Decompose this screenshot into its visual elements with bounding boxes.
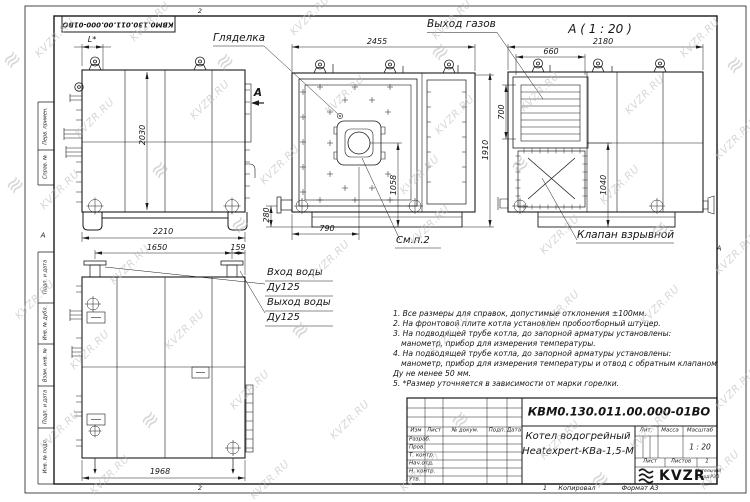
water-outlet-label: Выход воды xyxy=(267,298,331,308)
margin-cell-inv-podl: Инв. № подл. xyxy=(44,439,49,474)
hdr-doc: № докум. xyxy=(451,428,478,434)
format-label: Формат А3 xyxy=(621,485,658,492)
sheets-value: 1 xyxy=(705,459,709,465)
front-view-drawing xyxy=(64,44,264,242)
explosion-valve-label: Клапан взрывной xyxy=(577,230,674,241)
dim-790: 790 xyxy=(319,225,334,233)
sheet-label: Лист xyxy=(643,459,657,465)
water-inlet-label: Вход воды xyxy=(267,268,323,278)
lifting-lugs xyxy=(532,59,666,72)
dim-280: 280 xyxy=(263,207,271,222)
row-n-kontr: Н. контр. xyxy=(409,469,435,475)
note-line: 5. *Размер уточняется в зависимости от м… xyxy=(393,380,619,388)
dim-700: 700 xyxy=(498,104,506,119)
dim-2455: 2455 xyxy=(367,38,387,46)
lifting-lugs xyxy=(314,60,455,73)
margin-cell-podp-data-2: Подп. и дата xyxy=(44,390,49,424)
margin-cell-perv-primen: Перв. примен. xyxy=(44,107,49,145)
logo-subtitle-1: Котельный xyxy=(696,470,721,474)
product-name-line2: Heatexpert-КВа-1,5-М xyxy=(522,447,634,457)
copied-label: Копировал xyxy=(558,485,595,492)
dim-1968: 1968 xyxy=(150,468,170,476)
hdr-podp: Подп. xyxy=(489,428,506,434)
hand-holes xyxy=(87,312,209,425)
product-name-line1: Котел водогрейный xyxy=(526,432,631,442)
note-line: манометр, прибор для измерения температу… xyxy=(401,340,596,348)
kvzr-logo-icon xyxy=(639,469,653,483)
note-line: манометр, прибор для измерения температу… xyxy=(401,360,717,368)
top-stamp-doc-number: КВМ0.130.011.00.000-01ВО xyxy=(62,21,173,28)
lit-label: Лит. xyxy=(640,428,653,434)
dim-1058: 1058 xyxy=(390,175,398,195)
row-t-kontr: Т. контр. xyxy=(409,453,435,459)
scale-label: Масштаб xyxy=(687,428,713,434)
row-prov: Пров. xyxy=(409,445,425,451)
hdr-izm: Изм xyxy=(410,428,421,434)
dim-2180: 2180 xyxy=(593,38,613,46)
dim-2210: 2210 xyxy=(153,228,173,236)
lifting-lugs xyxy=(75,57,206,91)
dim-l-star: L* xyxy=(88,36,96,44)
dim-2030: 2030 xyxy=(139,125,147,145)
note-line: 1. Все размеры для справок, допустимые о… xyxy=(393,310,647,318)
sheets-label: Листов xyxy=(671,459,692,465)
note-line: Ду не менее 50 мм. xyxy=(393,370,471,378)
dim-1650: 1650 xyxy=(147,244,167,252)
margin-cell-podp-data-1: Подп. и дата xyxy=(44,260,49,294)
copied-sheet-no: 1 xyxy=(543,485,547,492)
dim-1040: 1040 xyxy=(600,175,608,195)
drawing-canvas xyxy=(0,0,750,500)
fold-mark-left: А xyxy=(41,233,46,240)
hdr-list: Лист xyxy=(427,428,441,434)
note-line: 3. На подводящей трубе котла, до запорно… xyxy=(393,330,671,338)
gas-outlet-label: Выход газов xyxy=(427,19,496,30)
row-nach-otd: Нач.отд. xyxy=(409,461,434,467)
section-a-title: А ( 1 : 20 ) xyxy=(568,23,632,35)
note-line: 4. На подводящей трубе котла, до запорно… xyxy=(393,350,671,358)
explosion-valve-panel xyxy=(516,149,588,210)
margin-cell-inv-dubl: Инв. № дубл. xyxy=(44,306,49,340)
section-arrow-a xyxy=(251,100,264,105)
dim-1910: 1910 xyxy=(482,140,490,160)
peephole xyxy=(337,113,342,118)
dim-159: 159 xyxy=(230,244,245,252)
section-mark-a: А xyxy=(254,88,262,99)
scale-value: 1 : 20 xyxy=(689,443,711,451)
water-inlet-dn: Ду125 xyxy=(267,283,300,293)
logo-subtitle-2: завод РЭП xyxy=(696,476,719,480)
fold-mark-right: А xyxy=(717,246,722,253)
water-outlet-dn: Ду125 xyxy=(267,313,300,323)
margin-cell-sprav-no: Справ. № xyxy=(44,155,49,179)
water-nozzles xyxy=(84,261,243,277)
hdr-data: Дата xyxy=(507,428,521,434)
margin-cell-vzam-inv: Взам. инв. № xyxy=(44,348,49,382)
peephole-label: Гляделка xyxy=(213,33,265,44)
row-razrab: Разраб. xyxy=(409,437,431,443)
gas-outlet-grille xyxy=(513,77,588,148)
doc-number: КВМ0.130.011.00.000-01ВО xyxy=(528,406,710,418)
see-note-2-label: См.п.2 xyxy=(396,236,430,246)
row-utv: Утв. xyxy=(409,477,421,483)
mass-label: Масса xyxy=(661,428,679,434)
zone-mark-top: 2 xyxy=(198,8,202,15)
dim-660: 660 xyxy=(543,48,558,56)
note-line: 2. На фронтовой плите котла установлен п… xyxy=(393,320,661,328)
section-view-drawing xyxy=(498,44,714,243)
zone-mark-bottom: 2 xyxy=(198,485,202,492)
